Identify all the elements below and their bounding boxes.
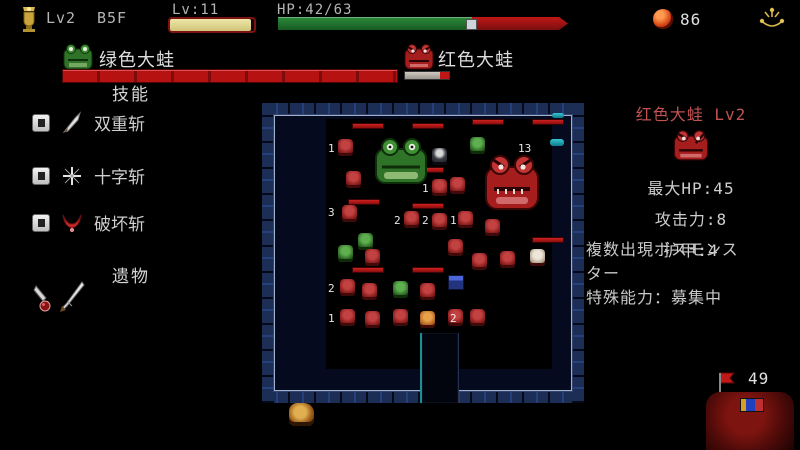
skills-header: 技能 [112, 80, 150, 105]
skill-name: 双重斩 [94, 110, 145, 135]
arena-teal [550, 139, 564, 146]
arena-mob-green [393, 281, 408, 298]
arena-mob-red [450, 177, 465, 194]
enemy-attack: 攻击力:8 [586, 206, 796, 230]
arena-mob-red [342, 205, 357, 222]
red-frog-icon [404, 43, 434, 70]
arena-bar [412, 123, 444, 129]
arena-mob-red [448, 239, 463, 256]
player-hp-label: HP:42/63 [277, 2, 352, 18]
ally-red-name: 红色大蛙 [438, 46, 514, 72]
game-screen: Lv2 B5F Lv:11 HP:42/63 86 绿色大蛙 红色大蛙 技能 [0, 0, 800, 450]
arena-num: 3 [328, 207, 335, 218]
arena-bar [352, 267, 384, 273]
flag-icon [716, 371, 740, 393]
arena-bar [532, 119, 564, 125]
arena-mob-light [530, 249, 545, 266]
arena-mob-red [365, 311, 380, 328]
hotkey-icon [32, 114, 50, 132]
skill-name: 十字斩 [94, 163, 145, 188]
player-level-label: Lv:11 [172, 2, 219, 18]
arena-mob-red [346, 171, 361, 188]
big-red-monster-sprite [706, 392, 794, 450]
arena-mob-red [404, 211, 419, 228]
dagger-icon [60, 111, 84, 135]
arena-mob-red [393, 309, 408, 326]
coin-icon [653, 9, 673, 29]
ally-red-hp-tip [440, 72, 449, 79]
skill-row-destroy-slash[interactable]: 破坏斩 [32, 210, 145, 235]
skill-row-cross-slash[interactable]: 十字斩 [32, 163, 145, 188]
arena-num: 1 [450, 215, 457, 226]
hotkey-icon [32, 167, 50, 185]
green-frog-icon [63, 43, 93, 70]
arena-mob-red [338, 139, 353, 156]
enemy-desc-line: ター [586, 262, 800, 286]
enemy-panel: 红色大蛙 Lv2 最大HP:45 攻击力:8 护甲:4 [586, 101, 796, 261]
arena-num: 2 [450, 313, 457, 324]
relics-header: 遗物 [112, 262, 150, 287]
monster-headpiece [740, 398, 764, 412]
arena-num: 1 [328, 143, 335, 154]
enemy-desc-line: 特殊能力：募集中 [586, 286, 800, 310]
arena-bar [532, 237, 564, 243]
floor-label: B5F [97, 9, 127, 27]
arena-bar [412, 203, 444, 209]
enemy-red-frog-icon [673, 129, 709, 161]
arena-bar [472, 119, 504, 125]
battle-arena-map: 13221121213 [262, 103, 584, 403]
arena-mob-red [362, 283, 377, 300]
arena-mob-green [470, 137, 485, 154]
arena-mob-red [340, 279, 355, 296]
cross-slash-icon [60, 164, 84, 188]
arena-mob-red [432, 213, 447, 230]
arena-mob-red [432, 179, 447, 196]
claw-icon [60, 211, 84, 235]
arena-num: 2 [394, 215, 401, 226]
arena-entities: 13221121213 [262, 103, 584, 403]
skill-row-double-slash[interactable]: 双重斩 [32, 110, 145, 135]
arena-bar [412, 267, 444, 273]
ally-red-hp-bar [404, 71, 450, 80]
arena-mob-green [358, 233, 373, 250]
arena-mob-red [470, 309, 485, 326]
arena-teal [552, 113, 564, 118]
arena-mob-red [420, 283, 435, 300]
small-critter-sprite [289, 403, 314, 426]
flag-count: 49 [748, 369, 769, 388]
arena-mob-red [458, 211, 473, 228]
enemy-desc-line: 複数出現ボスモンス [586, 238, 800, 262]
arena-mob-green [338, 245, 353, 262]
enemy-description: 複数出現ボスモンス ター 特殊能力：募集中 [586, 238, 800, 310]
level-bar [168, 17, 256, 33]
arena-bar [352, 123, 384, 129]
arena-corridor [420, 333, 459, 403]
enemy-max-hp: 最大HP:45 [586, 175, 796, 199]
arena-mob-red [340, 309, 355, 326]
relic-sword-icon[interactable] [58, 280, 86, 316]
coin-count: 86 [680, 10, 701, 29]
arena-num: 2 [328, 283, 335, 294]
arena-num: 1 [328, 313, 335, 324]
arena-chest [448, 275, 464, 290]
arena-greenfrog [374, 137, 428, 185]
rank-label: Lv2 [46, 9, 76, 27]
player-hp-bar [278, 17, 568, 30]
skill-name: 破坏斩 [94, 210, 145, 235]
hotkey-icon [32, 214, 50, 232]
arena-mob-red [500, 251, 515, 268]
arena-mob-dark [432, 148, 447, 165]
relic-dagger-icon[interactable] [30, 284, 54, 318]
menu-sparkle-icon[interactable] [757, 6, 787, 32]
trophy-icon [16, 5, 42, 33]
arena-mob-orange [420, 311, 435, 328]
arena-num: 2 [422, 215, 429, 226]
player-hp-lost [472, 17, 568, 30]
arena-mob-red [472, 253, 487, 270]
enemy-title: 红色大蛙 Lv2 [586, 101, 796, 125]
player-hp-fill [278, 17, 472, 30]
arena-mob-red [485, 219, 500, 236]
hp-bar-marker [466, 19, 477, 30]
arena-redfrog [484, 153, 540, 211]
level-bar-fill [170, 19, 251, 31]
arena-mob-red [365, 249, 380, 266]
